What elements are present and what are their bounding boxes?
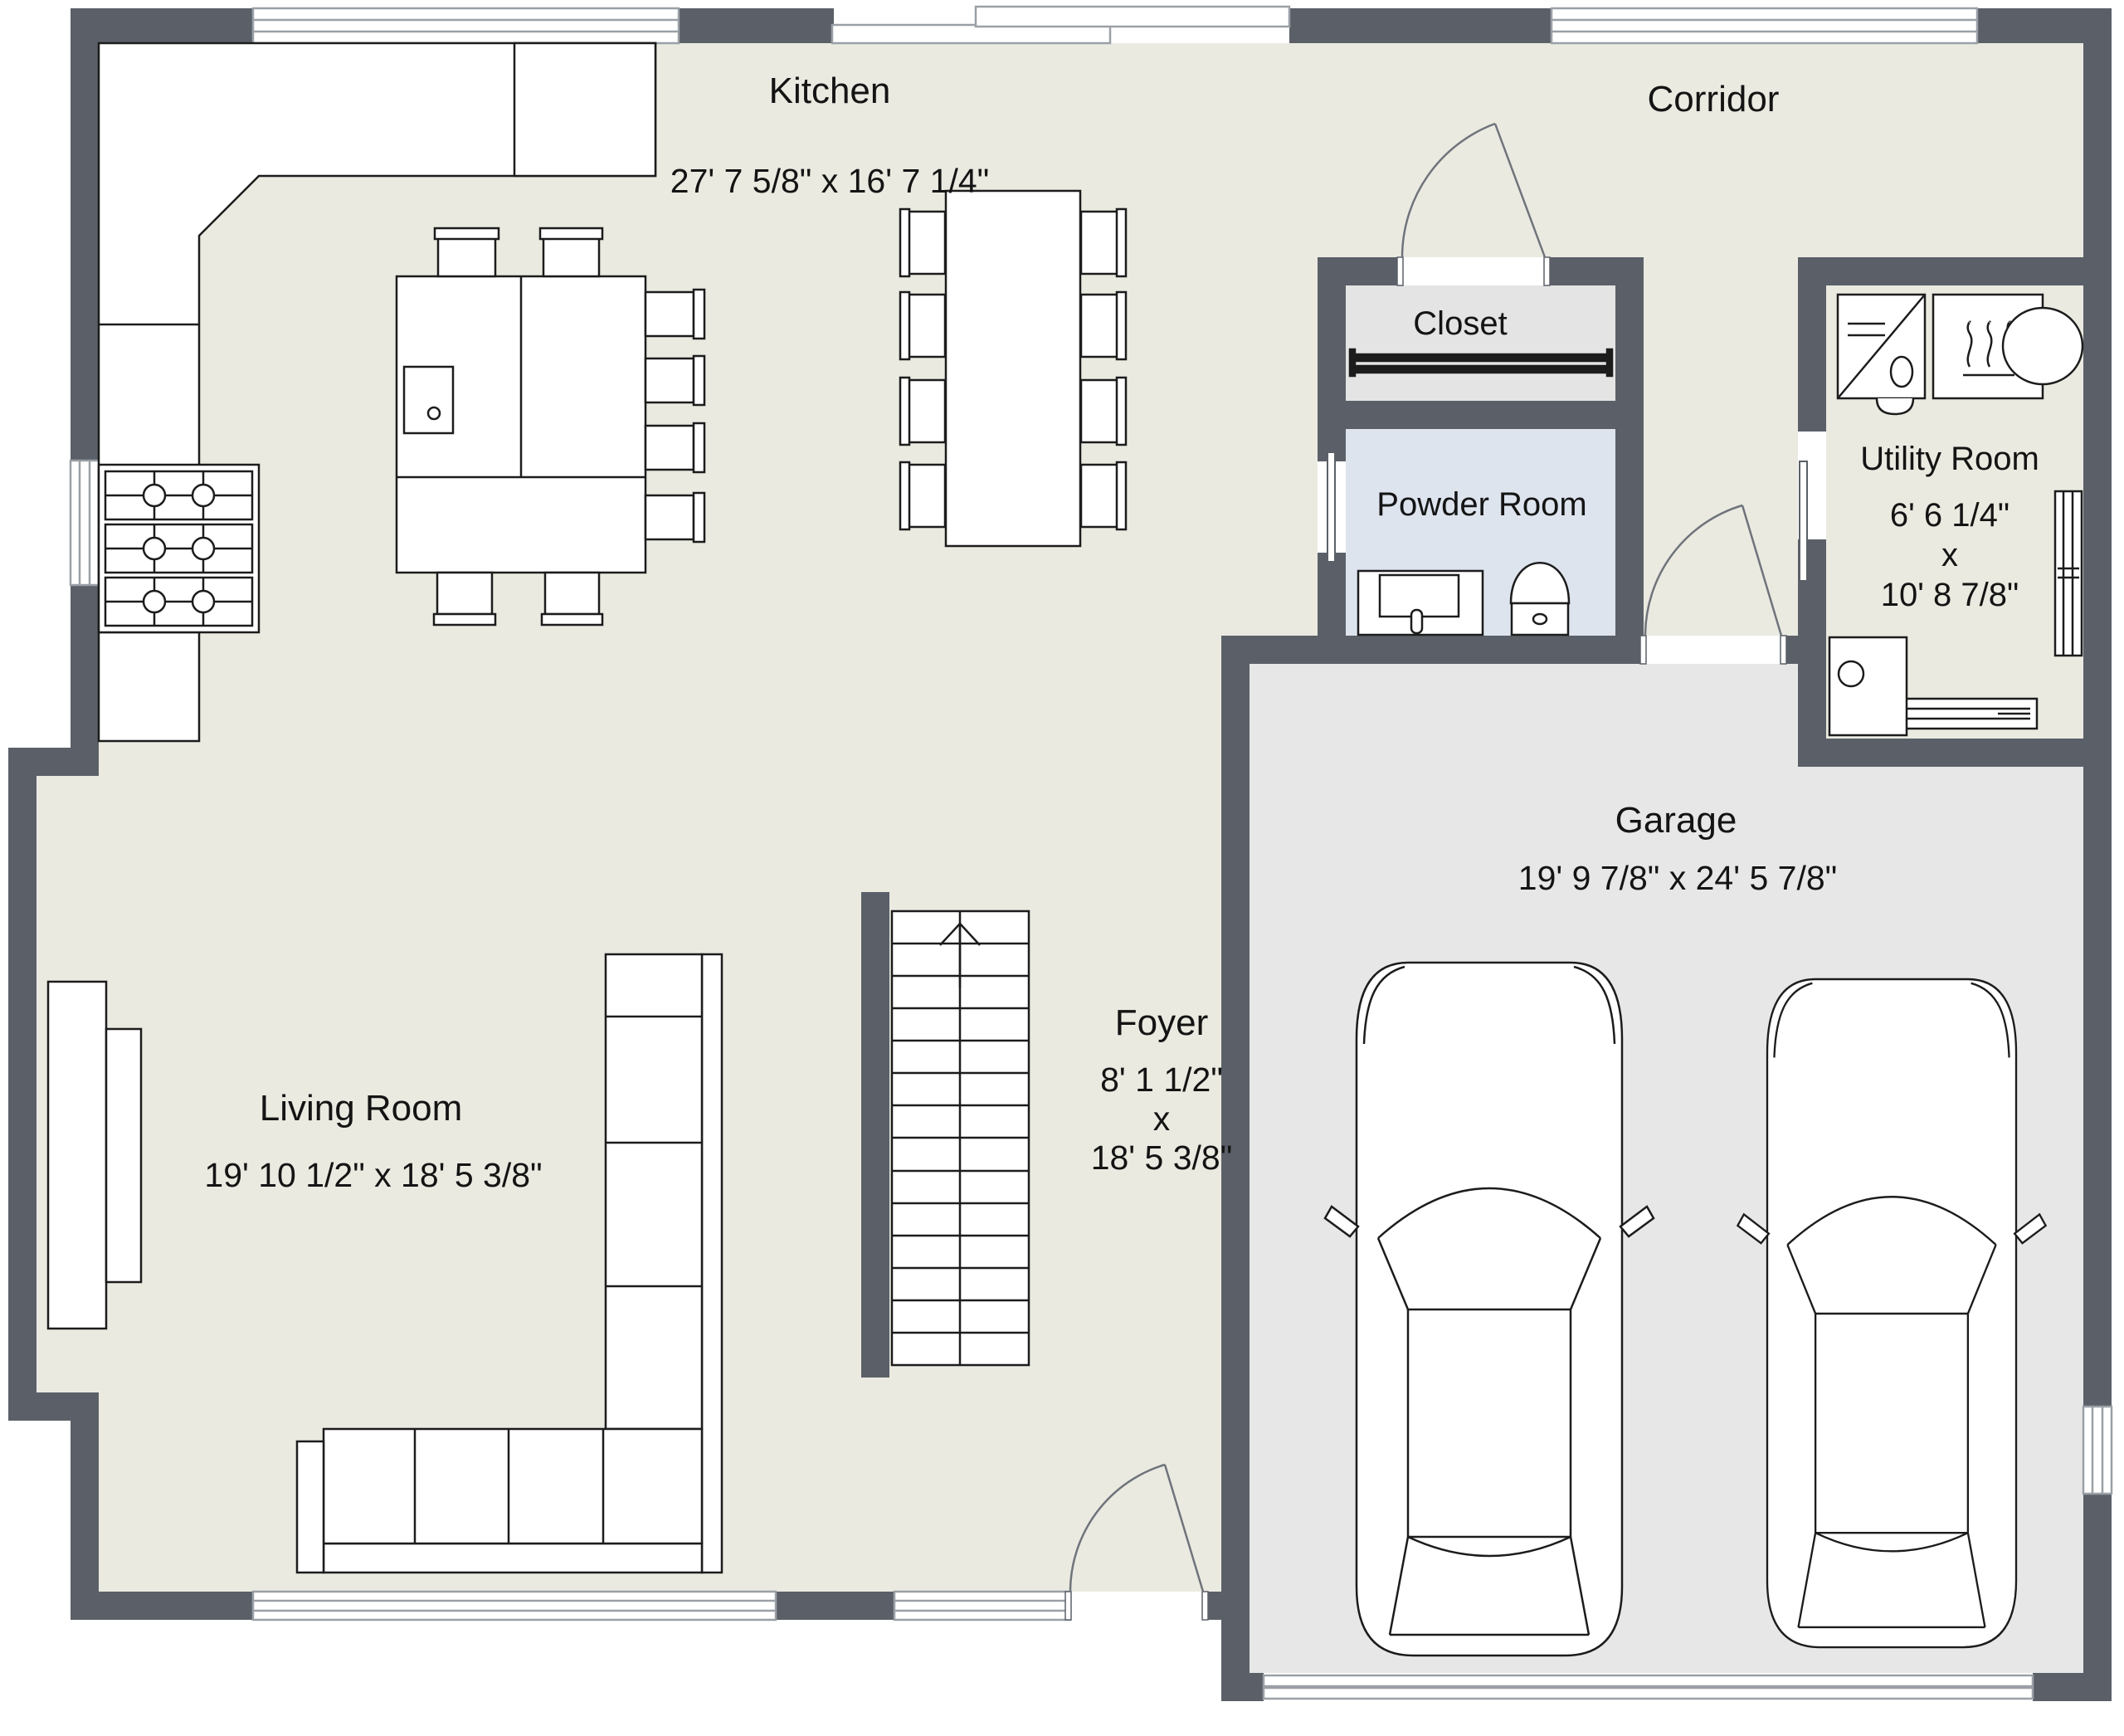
bar-stool (540, 228, 602, 239)
powder-room-door-panel (1327, 452, 1335, 562)
living-room-dims: 19' 10 1/2" x 18' 5 3/8" (204, 1156, 542, 1194)
dining-chair (905, 212, 945, 274)
toilet-icon (1511, 563, 1569, 635)
bar-stool (694, 493, 704, 542)
bar-stool (438, 238, 495, 276)
dining-chair (1117, 462, 1126, 529)
bar-stool (545, 573, 599, 614)
wall-closet-right (1615, 257, 1644, 636)
closet-floor (1346, 285, 1615, 401)
dining-chair (1081, 295, 1121, 357)
dining-chair (900, 378, 909, 445)
door-jamb (1065, 1592, 1071, 1620)
bar-stool (435, 228, 499, 239)
garage-dims: 19' 9 7/8" x 24' 5 7/8" (1518, 859, 1837, 897)
utility-room-door-panel (1800, 461, 1807, 581)
bar-stool (645, 358, 694, 402)
window-garage-right (2083, 1407, 2112, 1494)
front-door-opening (1070, 1592, 1203, 1620)
console-table (48, 982, 141, 1329)
bar-stool (694, 290, 704, 339)
dining-chair (900, 462, 909, 529)
window-left (71, 461, 99, 585)
utility-room-label: Utility Room (1860, 441, 2039, 477)
kitchen-island (397, 276, 645, 573)
door-jamb (1640, 636, 1646, 664)
wall-alcove-bottom (8, 1392, 99, 1421)
car-left (1325, 963, 1654, 1656)
window-top-1 (253, 8, 679, 43)
wall-alcove-left (8, 776, 37, 1392)
bar-stool (694, 423, 704, 472)
car-right (1737, 979, 2045, 1647)
dining-chair (1081, 465, 1121, 527)
utility-basin-icon (2003, 308, 2083, 384)
dining-chair (1081, 212, 1121, 274)
dining-chair (905, 295, 945, 357)
wall-stairs (861, 892, 889, 1378)
wall-alcove-top (8, 748, 99, 776)
wall-utility-bottom (1798, 739, 2083, 767)
foyer-dim-length: 18' 5 3/8" (1091, 1139, 1233, 1177)
bar-stool (645, 426, 694, 470)
closet-label: Closet (1413, 305, 1507, 342)
garage-entry-door-opening (1645, 636, 1781, 664)
dining-chair (1117, 209, 1126, 276)
sofa-back (702, 954, 722, 1573)
garage-door (1264, 1673, 2033, 1701)
dining-chair (900, 209, 909, 276)
washing-machine-icon (1838, 295, 1925, 414)
utility-room-dim-width: 6' 6 1/4" (1890, 497, 2010, 534)
wall-closet-powder-divider (1318, 401, 1644, 429)
bar-stool (542, 614, 602, 625)
bar-stool (437, 573, 492, 614)
dining-chair (1117, 378, 1126, 445)
foyer-dim-width: 8' 1 1/2" (1100, 1061, 1223, 1099)
bar-stool (434, 614, 495, 625)
sofa-back (324, 1543, 702, 1573)
dining-chair (905, 465, 945, 527)
burner-rows (105, 471, 252, 626)
floor-plan-page: Kitchen 27' 7 5/8" x 16' 7 1/4" Corridor… (0, 0, 2124, 1736)
dining-chair (905, 380, 945, 442)
vanity-sink-icon (1358, 571, 1483, 635)
dining-chair (1081, 380, 1121, 442)
faucet-icon (428, 407, 440, 419)
utility-room-dim-length: 10' 8 7/8" (1881, 577, 2019, 613)
kitchen-dims: 27' 7 5/8" x 16' 7 1/4" (670, 162, 989, 200)
staircase (892, 911, 1029, 1365)
door-jamb (1397, 257, 1403, 285)
wall-opening-top-step (832, 7, 1289, 43)
kitchen-label: Kitchen (769, 71, 891, 111)
sofa-armrest (297, 1441, 324, 1573)
radiator-icon (2055, 491, 2082, 656)
sofa-seats (324, 1429, 702, 1543)
living-room-label: Living Room (260, 1088, 463, 1129)
door-jamb (1202, 1592, 1208, 1620)
door-jamb (1544, 257, 1550, 285)
stove-icon (99, 465, 259, 632)
dining-chair (1117, 292, 1126, 359)
island-sink-icon (404, 367, 453, 433)
wall-left-upper (71, 43, 99, 776)
foyer-dim-sep: x (1153, 1100, 1171, 1138)
bar-stool (694, 356, 704, 405)
wall-left-lower (71, 1421, 99, 1592)
water-heater-icon (1829, 637, 1907, 735)
garage-label: Garage (1615, 800, 1737, 841)
window-top-2 (1552, 8, 1977, 43)
powder-room-label: Powder Room (1376, 486, 1586, 523)
closet-door-opening (1402, 257, 1545, 285)
utility-room-dim-sep: x (1941, 537, 1958, 573)
fridge (514, 43, 655, 176)
door-jamb (1781, 636, 1786, 664)
bar-stool (645, 495, 694, 539)
wall-closet-left (1318, 257, 1346, 636)
dining-chair (900, 292, 909, 359)
window-bottom-1 (253, 1592, 776, 1620)
window-bottom-2 (894, 1592, 1070, 1620)
bar-stool (645, 292, 694, 336)
foyer-label: Foyer (1115, 1002, 1208, 1043)
dining-table (946, 191, 1080, 546)
corridor-label: Corridor (1648, 79, 1780, 119)
floor-plan-canvas: Kitchen 27' 7 5/8" x 16' 7 1/4" Corridor… (0, 0, 2124, 1736)
sofa-seats (606, 954, 702, 1429)
bar-stool (543, 238, 599, 276)
wall-utility-top (1826, 257, 2083, 285)
